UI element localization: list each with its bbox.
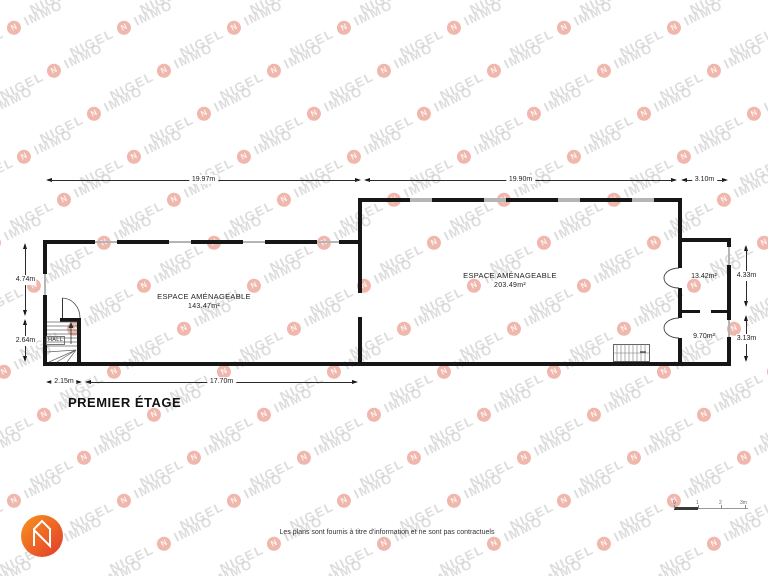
- wall-dashes: [43, 240, 362, 244]
- dim-label: 2.64m: [15, 336, 36, 346]
- dim-label: 3.13m: [736, 334, 757, 344]
- wall-extension-right-c: [727, 310, 731, 320]
- wall-divider-upper: [358, 202, 362, 293]
- dimension-bottom-hall: 2.15m: [46, 379, 82, 386]
- wall-extension-top: [682, 238, 731, 242]
- wall-left-upper: [43, 240, 47, 274]
- dim-label: 17.70m: [207, 377, 236, 386]
- dimension-left-lower: 2.64m: [22, 319, 29, 362]
- wall-top-left-wing: [43, 240, 362, 244]
- wall-dashes: [358, 198, 682, 202]
- room-area: 143.47m²: [130, 302, 278, 312]
- wall-left-lower: [43, 295, 47, 366]
- dim-label: 3.10m: [692, 175, 717, 184]
- scale-tick: [674, 505, 675, 509]
- room-area-1342: 13.42m²: [680, 273, 728, 280]
- scale-thick-segment: [674, 507, 698, 510]
- room-name: ESPACE AMÉNAGEABLE: [436, 271, 584, 281]
- room-label-right: ESPACE AMÉNAGEABLE 203.49m²: [436, 271, 584, 291]
- room-area-970: 9.70m²: [680, 333, 728, 340]
- scale-bar: 0 1 2 3m: [674, 500, 749, 512]
- dimension-left-upper: 4.74m: [22, 243, 29, 316]
- window-extension-upper: [728, 247, 730, 265]
- hall-label: HALL: [46, 336, 65, 345]
- scale-tick: [745, 505, 746, 509]
- window-extension-lower: [728, 320, 730, 337]
- dim-label: 19.97m: [189, 175, 218, 184]
- floorplan-page: NIGELNIMMONIGELNIMMONIGELNIMMONIGELNIMMO…: [0, 0, 768, 576]
- room-label-left: ESPACE AMÉNAGEABLE 143.47m²: [130, 292, 278, 312]
- dimension-top-extension: 3.10m: [681, 177, 728, 184]
- dimension-top-right-wing: 19.90m: [364, 177, 677, 184]
- wall-extension-right-a: [727, 238, 731, 247]
- wall-hall-right: [77, 318, 81, 362]
- disclaimer-text: Les plans sont fournis à titre d'informa…: [234, 529, 540, 536]
- wall-room-divider-a: [682, 310, 700, 313]
- nigel-immo-logo: [20, 514, 64, 558]
- dim-label: 4.33m: [736, 271, 757, 281]
- floorplan: 19.97m 19.90m 3.10m 4.74m 2.64m 4.33m: [0, 0, 768, 576]
- wall-main-right-a: [678, 202, 682, 268]
- wall-main-right-b: [678, 288, 682, 318]
- floor-title: PREMIER ÉTAGE: [68, 395, 181, 410]
- dim-label: 19.90m: [506, 175, 535, 184]
- dimension-right-lower: 3.13m: [743, 315, 750, 362]
- room-name: ESPACE AMÉNAGEABLE: [130, 292, 278, 302]
- room-area: 203.49m²: [436, 281, 584, 291]
- wall-extension-right-d: [727, 337, 731, 362]
- scale-tick: [721, 505, 722, 509]
- wall-bottom: [43, 362, 731, 366]
- wall-divider-lower: [358, 317, 362, 362]
- wall-main-right-c: [678, 338, 682, 362]
- dimension-right-upper: 4.33m: [743, 245, 750, 307]
- wall-top-right-wing: [358, 198, 682, 202]
- wall-extension-right-b: [727, 265, 731, 310]
- scale-tick: [698, 505, 699, 509]
- dimension-top-left-wing: 19.97m: [46, 177, 361, 184]
- dim-label: 4.74m: [15, 275, 36, 285]
- dim-label: 2.15m: [51, 377, 76, 386]
- wall-room-divider-b: [711, 310, 727, 313]
- window-left: [44, 274, 46, 295]
- dimension-bottom-room: 17.70m: [85, 379, 358, 386]
